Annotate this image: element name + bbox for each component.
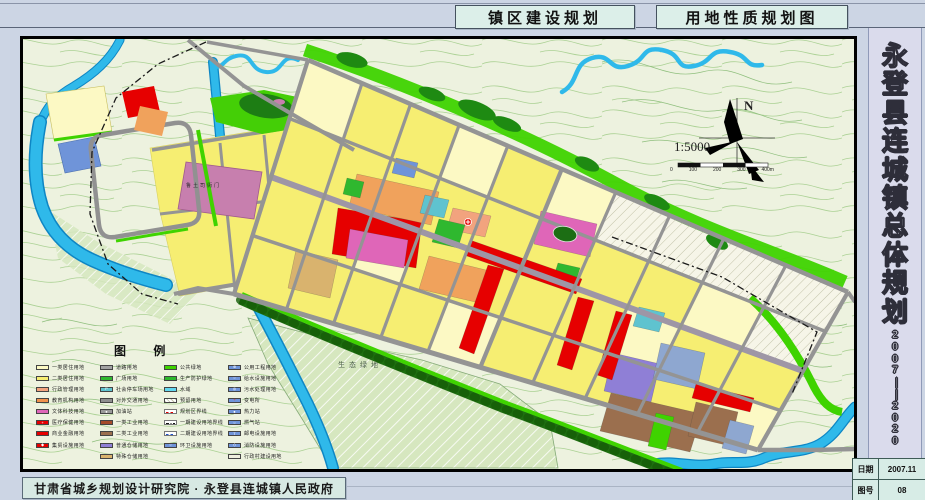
legend: 图 例 一类居住用地二类居住用地行政管理用地教育机构用地文体科技用地+医疗保健用…	[30, 342, 272, 464]
plan-year-char: 7	[890, 365, 901, 377]
legend-label: 道路用地	[116, 364, 138, 371]
legend-item: 二类工业用地	[100, 431, 148, 437]
legend-swatch: ◎	[228, 387, 241, 392]
plan-title-char: 划	[882, 298, 908, 326]
legend-item: 商业金融用地	[36, 431, 84, 437]
legend-item: 普通仓储用地	[100, 442, 148, 448]
legend-item: 文体科技用地	[36, 409, 84, 415]
legend-label: 污水处理用地	[244, 386, 276, 393]
title-box-plan: 镇区建设规划	[455, 5, 635, 29]
plan-title-char: 城	[882, 156, 908, 184]
credit-bar: 甘肃省城乡规划设计研究院 · 永登县连城镇人民政府	[22, 477, 346, 499]
legend-label: 燃气站	[244, 419, 260, 426]
legend-label: 加油站	[116, 408, 132, 415]
legend-swatch	[164, 420, 177, 425]
scale-ticks: 0100200300400m	[670, 167, 774, 173]
plan-year-char: 0	[890, 342, 901, 354]
legend-item: 一期建设用地界线	[164, 420, 223, 426]
legend-label: 教育机构用地	[52, 397, 84, 404]
legend-item: +医疗保健用地	[36, 420, 84, 426]
plan-year-char: 2	[890, 401, 901, 413]
sheet-info-table: 日期 2007.11 图号 08	[852, 458, 925, 500]
legend-item: 教育机构用地	[36, 397, 84, 403]
scale-tick: 300	[737, 167, 745, 173]
legend-label: 特殊仓储用地	[116, 453, 148, 460]
plan-year-char: —	[889, 389, 901, 400]
legend-swatch: ⊕	[228, 365, 241, 370]
legend-item: ⊕公用工程用地	[228, 364, 276, 370]
legend-item: ●热力站	[228, 409, 260, 415]
legend-item: 对外交通用地	[100, 397, 148, 403]
sheet-number-label: 图号	[853, 480, 879, 500]
plan-title-char: 连	[882, 127, 908, 155]
legend-swatch: +	[36, 420, 49, 425]
legend-label: 水域	[180, 386, 191, 393]
date-label: 日期	[853, 459, 879, 479]
legend-swatch	[164, 376, 177, 381]
plan-years-vertical: 2007——2020	[890, 330, 901, 448]
legend-item: T邮电设施用地	[228, 431, 276, 437]
legend-swatch	[36, 431, 49, 436]
top-rule	[0, 3, 925, 4]
legend-swatch	[164, 398, 177, 403]
legend-item: ◎污水处理用地	[228, 386, 276, 392]
legend-label: 公用工程用地	[244, 364, 276, 371]
legend-item: P社会停车场用地	[100, 386, 154, 392]
legend-label: 二类居住用地	[52, 375, 84, 382]
legend-item: 行政管理用地	[36, 386, 84, 392]
legend-item: 道路用地	[100, 364, 138, 370]
plan-title-char: 永	[882, 42, 908, 70]
legend-item: 二类居住用地	[36, 375, 84, 381]
legend-swatch: P	[100, 387, 113, 392]
legend-swatch	[36, 409, 49, 414]
legend-item: 生产防护绿地	[164, 375, 212, 381]
legend-swatch	[36, 376, 49, 381]
legend-item: ◆集贸设施用地	[36, 442, 84, 448]
legend-label: 社会停车场用地	[116, 386, 154, 393]
legend-label: 规划区界线	[180, 408, 207, 415]
legend-swatch: ◇	[228, 443, 241, 448]
scale-tick: 400m	[761, 167, 774, 173]
legend-swatch	[100, 365, 113, 370]
plan-title-char: 登	[882, 70, 908, 98]
legend-item: 规划区界线	[164, 409, 207, 415]
plan-title-char: 总	[882, 212, 908, 240]
plan-title-char: 镇	[882, 184, 908, 212]
legend-item: 一类工业用地	[100, 420, 148, 426]
legend-label: 热力站	[244, 408, 260, 415]
legend-label: 环卫设施用地	[180, 442, 212, 449]
legend-label: 普通仓储用地	[116, 442, 148, 449]
legend-label: 广场用地	[116, 375, 138, 382]
legend-label: 文体科技用地	[52, 408, 84, 415]
date-row: 日期 2007.11	[853, 459, 925, 479]
legend-item: ○燃气站	[228, 420, 260, 426]
legend-swatch	[164, 387, 177, 392]
legend-swatch	[164, 409, 177, 414]
legend-swatch: ●	[100, 409, 113, 414]
legend-label: 医疗保健用地	[52, 419, 84, 426]
legend-label: 二期建设用地界线	[180, 430, 223, 437]
legend-label: 变电所	[244, 397, 260, 404]
legend-swatch: ●	[228, 409, 241, 414]
plan-title-char: 县	[882, 99, 908, 127]
legend-label: 对外交通用地	[116, 397, 148, 404]
legend-item: 预留用地	[164, 397, 202, 403]
legend-item: 公共绿地	[164, 364, 202, 370]
legend-item: 行政村建设用地	[228, 453, 282, 459]
legend-swatch	[36, 398, 49, 403]
legend-item: +变电所	[228, 397, 260, 403]
date-value: 2007.11	[879, 459, 925, 479]
plan-title-char: 规	[882, 269, 908, 297]
legend-swatch: T	[228, 431, 241, 436]
legend-label: 一期建设用地界线	[180, 419, 223, 426]
legend-label: 行政村建设用地	[244, 453, 282, 460]
legend-swatch: ○	[228, 420, 241, 425]
legend-item: 水域	[164, 386, 191, 392]
legend-swatch	[36, 365, 49, 370]
legend-item: ○环卫设施用地	[164, 442, 212, 448]
legend-title: 图 例	[114, 342, 177, 359]
legend-swatch	[100, 376, 113, 381]
legend-swatch	[100, 443, 113, 448]
legend-item: 广场用地	[100, 375, 138, 381]
legend-swatch: ○	[228, 376, 241, 381]
hospital-cross-icon	[465, 219, 472, 226]
legend-swatch	[164, 431, 177, 436]
legend-item: ○给水设施用地	[228, 375, 276, 381]
legend-swatch	[100, 454, 113, 459]
legend-swatch: ◆	[36, 443, 49, 448]
scale-tick: 100	[689, 167, 697, 173]
plan-year-char: —	[889, 378, 901, 389]
legend-label: 预留用地	[180, 397, 202, 404]
legend-label: 二类工业用地	[116, 430, 148, 437]
legend-swatch: +	[228, 398, 241, 403]
scale-tick: 200	[713, 167, 721, 173]
legend-swatch	[100, 398, 113, 403]
legend-label: 邮电设施用地	[244, 430, 276, 437]
legend-label: 集贸设施用地	[52, 442, 84, 449]
footer-rule	[346, 486, 852, 487]
legend-item: 一类居住用地	[36, 364, 84, 370]
legend-label: 生产防护绿地	[180, 375, 212, 382]
legend-label: 消防设施用地	[244, 442, 276, 449]
legend-swatch	[36, 387, 49, 392]
legend-label: 商业金融用地	[52, 430, 84, 437]
legend-label: 一类工业用地	[116, 419, 148, 426]
legend-item: ●加油站	[100, 409, 132, 415]
legend-item: 特殊仓储用地	[100, 453, 148, 459]
page: 镇区建设规划 用地性质规划图	[0, 0, 925, 500]
legend-swatch	[164, 365, 177, 370]
sheet-number-value: 08	[879, 480, 925, 500]
legend-label: 给水设施用地	[244, 375, 276, 382]
legend-swatch: ○	[164, 443, 177, 448]
sheet-number-row: 图号 08	[853, 479, 925, 500]
scale-tick: 0	[670, 167, 673, 173]
legend-swatch	[100, 420, 113, 425]
title-box-landuse: 用地性质规划图	[656, 5, 848, 29]
plan-year-char: 0	[890, 436, 901, 448]
legend-swatch	[100, 431, 113, 436]
legend-label: 公共绿地	[180, 364, 202, 371]
legend-item: 二期建设用地界线	[164, 431, 223, 437]
plan-title-char: 体	[882, 241, 908, 269]
legend-swatch	[228, 454, 241, 459]
legend-label: 行政管理用地	[52, 386, 84, 393]
plan-title-vertical: 永登县连城镇总体规划	[882, 42, 908, 326]
legend-item: ◇消防设施用地	[228, 442, 276, 448]
side-panel: 永登县连城镇总体规划 2007——2020	[868, 28, 922, 459]
legend-label: 一类居住用地	[52, 364, 84, 371]
